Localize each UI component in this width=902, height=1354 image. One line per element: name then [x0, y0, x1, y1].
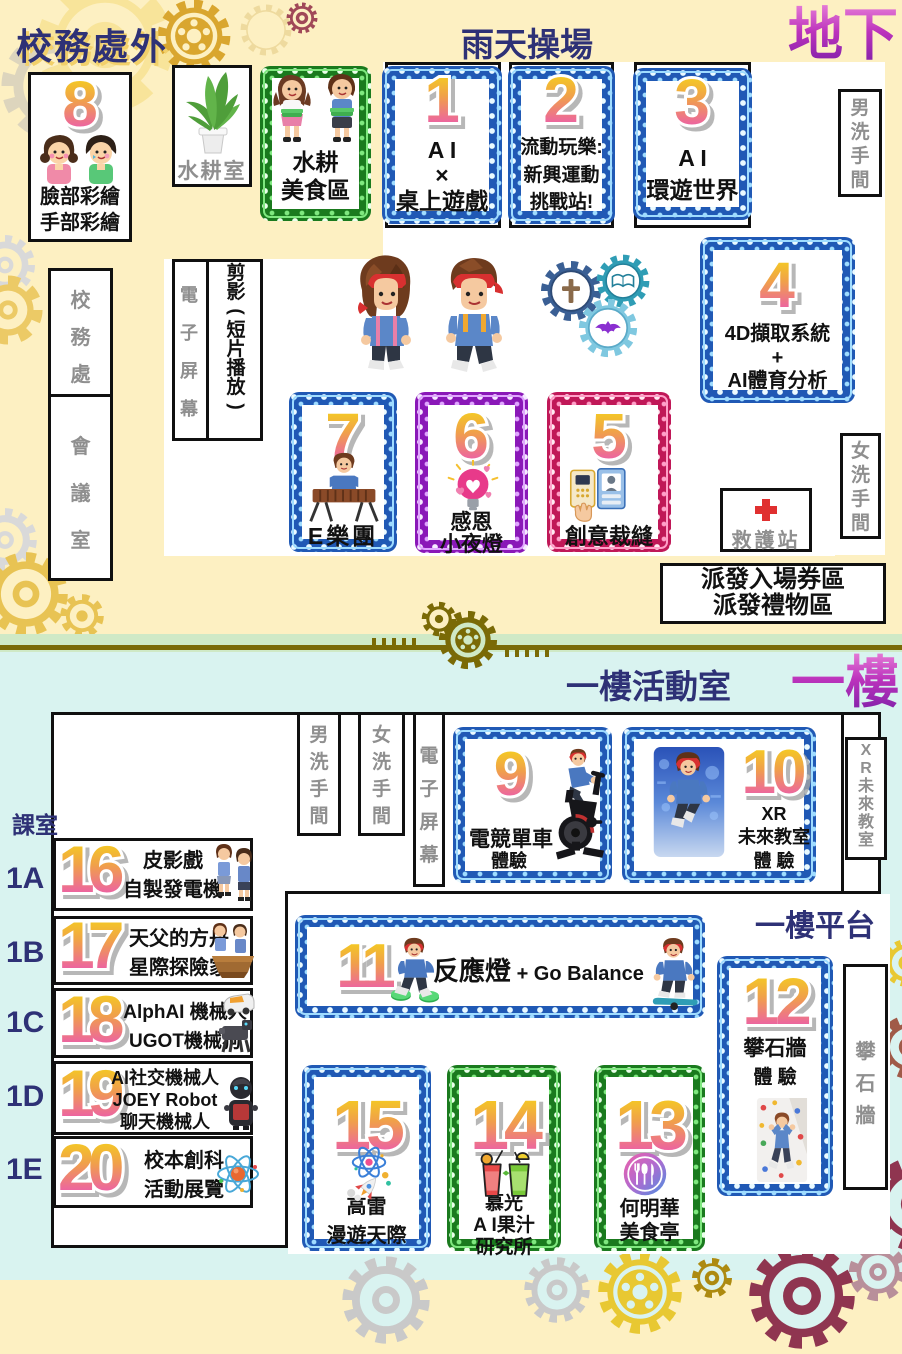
svg-text:地下: 地下 — [788, 3, 898, 67]
svg-text:5: 5 — [591, 400, 627, 472]
svg-text:17: 17 — [58, 908, 122, 982]
svg-text:10: 10 — [742, 738, 804, 807]
svg-text:3: 3 — [674, 66, 710, 138]
svg-text:18: 18 — [58, 982, 123, 1056]
svg-text:一樓: 一樓 — [791, 651, 899, 714]
svg-text:2: 2 — [543, 64, 579, 136]
svg-text:4: 4 — [759, 249, 795, 321]
svg-text:9: 9 — [494, 740, 528, 809]
svg-text:20: 20 — [58, 1130, 122, 1204]
svg-text:12: 12 — [742, 964, 810, 1038]
svg-text:1: 1 — [424, 64, 460, 136]
